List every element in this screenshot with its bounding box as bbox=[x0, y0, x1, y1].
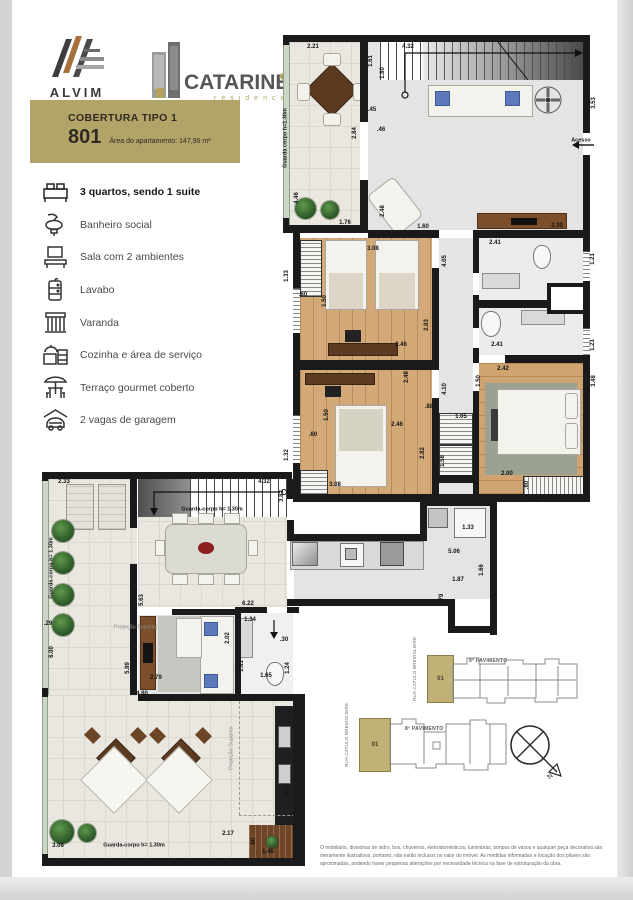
dim-label: .88 bbox=[425, 404, 433, 410]
dim-label: 2.46 bbox=[391, 422, 403, 428]
plan-shape bbox=[58, 350, 67, 364]
plan-shape bbox=[543, 758, 557, 772]
plan-shape bbox=[49, 426, 53, 430]
dim-label: 1.80 bbox=[380, 67, 386, 79]
dim-label: 5.99 bbox=[125, 662, 131, 674]
plan-shape bbox=[42, 408, 69, 433]
dim-label: 3.08 bbox=[52, 843, 64, 849]
dim-label: 1.58 bbox=[440, 455, 446, 467]
lavabo-cabinet-icon bbox=[42, 277, 72, 304]
dim-label: 1.50 bbox=[476, 375, 482, 387]
kitchen-icon bbox=[42, 342, 72, 369]
alvim-logo: ALVIM Construtora bbox=[42, 33, 112, 105]
plan-shape bbox=[45, 347, 57, 352]
dim-label: 2.21 bbox=[307, 44, 319, 50]
dim-label: 2.48 bbox=[380, 205, 386, 217]
dim-label: 2.82 bbox=[420, 447, 426, 459]
dim-label: 1.24 bbox=[285, 662, 291, 674]
plan-shape bbox=[57, 284, 59, 286]
dim-label: 1.76 bbox=[339, 220, 351, 226]
dim-label: 1.21 bbox=[590, 339, 596, 351]
dim-label: 2.83 bbox=[424, 319, 430, 331]
compass-rose: N bbox=[507, 722, 565, 780]
plan-shape: 801 Área do apartamento: 147,96 m² bbox=[68, 126, 240, 149]
plan-shape: 3 quartos, sendo 1 suite Banheiro social… bbox=[42, 176, 277, 437]
dim-label: Acesso bbox=[571, 138, 591, 144]
legend-item-varanda: Varanda bbox=[42, 306, 277, 339]
plan-shape bbox=[45, 377, 66, 382]
plan-shape: CATARINE residence bbox=[150, 40, 300, 102]
dim-label: 4.80 bbox=[136, 691, 148, 697]
alvim-logo-icon bbox=[46, 33, 108, 79]
alvim-name: ALVIM bbox=[42, 85, 112, 100]
garage-car-icon bbox=[42, 407, 72, 434]
plan-shape bbox=[42, 212, 69, 238]
dim-label: 2.41 bbox=[489, 240, 501, 246]
dim-label: 1.48 bbox=[529, 496, 541, 502]
dim-label: 1.66 bbox=[479, 564, 485, 576]
dim-label: 2.84 bbox=[352, 127, 358, 139]
dim-label: 4.05 bbox=[442, 255, 448, 267]
dim-label: .60 bbox=[309, 432, 317, 438]
plan-shape bbox=[42, 180, 69, 204]
dim-label: Guarda-corpo h= 1.30m bbox=[103, 843, 165, 849]
legend-label: Lavabo bbox=[80, 284, 114, 296]
dim-label: .60 bbox=[251, 838, 257, 846]
dim-label: .79 bbox=[439, 594, 445, 602]
upper-floor-plan: 2.214.321.611.803.53.452.84.46Guarda cor… bbox=[283, 33, 598, 505]
legend-item-garagem: 2 vagas de garagem bbox=[42, 404, 277, 437]
plan-shape bbox=[51, 229, 57, 233]
dim-label: 4.10 bbox=[442, 383, 448, 395]
plan-shape bbox=[405, 53, 575, 92]
dim-label: .30 bbox=[280, 637, 288, 643]
dim-label: 3.08 bbox=[367, 246, 379, 252]
plan-shape bbox=[42, 342, 69, 368]
plan-shape bbox=[44, 189, 67, 198]
dim-label: 2.79 bbox=[150, 675, 162, 681]
plan-shape bbox=[84, 49, 100, 52]
dim-label: 2.33 bbox=[58, 479, 70, 485]
unit-number: 801 bbox=[68, 126, 101, 149]
dim-label: 3.48 bbox=[591, 375, 597, 387]
plan-shape bbox=[44, 410, 67, 417]
dim-label: 1.33 bbox=[462, 525, 474, 531]
dim-label: 1.50 bbox=[324, 409, 330, 421]
unit-badge: COBERTURA TIPO 1 801 Área do apartamento… bbox=[30, 100, 240, 163]
dim-label: 1.48 bbox=[262, 849, 274, 855]
dim-label: 2.17 bbox=[222, 831, 234, 837]
dim-label: Guarda corpo h=1.30m bbox=[283, 108, 289, 168]
plan-shape bbox=[575, 49, 583, 57]
plan-shape bbox=[270, 632, 278, 639]
dim-label: 1.32 bbox=[284, 449, 290, 461]
plan-shape bbox=[45, 260, 66, 264]
plan-shape bbox=[170, 46, 178, 90]
catarine-name: CATARINE bbox=[184, 72, 289, 93]
page: ALVIM Construtora CATARINE residence COB… bbox=[12, 0, 617, 877]
tv-icon bbox=[42, 244, 72, 271]
dim-label: Projeção Superior bbox=[114, 625, 158, 631]
legend-label: Varanda bbox=[80, 317, 119, 329]
plan-shape bbox=[46, 220, 62, 229]
dim-label: 2.00 bbox=[501, 471, 513, 477]
dim-label: 3.08 bbox=[329, 482, 341, 488]
dim-label: Projeção Superior bbox=[229, 726, 235, 770]
dim-label: 1.65 bbox=[260, 673, 272, 679]
lower-plan-arrows bbox=[42, 468, 512, 870]
dim-label: 3.53 bbox=[591, 97, 597, 109]
plan-shape bbox=[42, 311, 69, 335]
plan-shape bbox=[402, 92, 408, 98]
legend-label: 2 vagas de garagem bbox=[80, 414, 176, 426]
dim-label: 5.63 bbox=[139, 594, 145, 606]
legend-item-livingroom: Sala com 2 ambientes bbox=[42, 241, 277, 274]
plan-shape bbox=[150, 508, 158, 516]
dim-label: .60 bbox=[524, 481, 530, 489]
dim-label: 4.87 bbox=[285, 784, 291, 796]
dim-label: .60 bbox=[299, 292, 307, 298]
legend-label: 3 quartos, sendo 1 suite bbox=[80, 186, 200, 198]
dim-label: 1.50 bbox=[322, 295, 328, 307]
dim-label: 1.60 bbox=[417, 224, 429, 230]
plan-shape bbox=[154, 55, 164, 89]
plan-shape bbox=[42, 245, 69, 270]
lower-floor-plan: 2.334.323.82Guarda-corpo h= 1.30mGuarda-… bbox=[42, 468, 512, 870]
dim-label: Guarda-corpo h= 1.30m bbox=[181, 507, 243, 513]
balcony-railing-icon bbox=[42, 309, 72, 336]
plan-shape bbox=[80, 57, 104, 61]
plan-shape bbox=[58, 426, 62, 430]
legend-item-lavabo: Lavabo bbox=[42, 274, 277, 307]
dim-label: 2.30 bbox=[551, 223, 563, 229]
upper-plan-arrows bbox=[283, 33, 598, 505]
plan-shape bbox=[498, 42, 528, 80]
unit-area: Área do apartamento: 147,96 m² bbox=[109, 138, 210, 145]
dim-label: 1.33 bbox=[284, 270, 290, 282]
dim-label: 1.87 bbox=[452, 577, 464, 583]
dim-label: 2.42 bbox=[497, 366, 509, 372]
legend: 3 quartos, sendo 1 suite Banheiro social… bbox=[42, 176, 277, 437]
legend-item-kitchen: Cozinha e área de serviço bbox=[42, 339, 277, 372]
plan-shape bbox=[76, 65, 104, 69]
washbasin-icon bbox=[42, 211, 72, 238]
dim-label: 1.34 bbox=[244, 617, 256, 623]
plan-shape bbox=[42, 277, 69, 304]
dim-label: 2.02 bbox=[225, 632, 231, 644]
legend-label: Sala com 2 ambientes bbox=[80, 251, 184, 263]
plan-shape bbox=[46, 313, 65, 317]
plan-shape bbox=[42, 374, 69, 401]
plan-shape bbox=[57, 184, 64, 189]
legend-item-bedrooms: 3 quartos, sendo 1 suite bbox=[42, 176, 277, 209]
legend-label: Cozinha e área de serviço bbox=[80, 349, 202, 361]
catarine-building-icon bbox=[150, 40, 184, 102]
page-edge-right bbox=[617, 0, 633, 900]
dim-label: 1.61 bbox=[368, 55, 374, 67]
plan-shape: CATARINE residence bbox=[184, 72, 289, 102]
plan-shape bbox=[57, 290, 59, 292]
dim-label: 2.48 bbox=[404, 371, 410, 383]
dim-label: 2.46 bbox=[395, 342, 407, 348]
plan-shape bbox=[156, 88, 164, 98]
plan-shape bbox=[48, 214, 57, 220]
plan-shape bbox=[48, 247, 62, 257]
unit-type-title: COBERTURA TIPO 1 bbox=[68, 112, 240, 124]
plan-shape bbox=[44, 354, 56, 364]
dim-label: .46 bbox=[377, 127, 385, 133]
page-edge-bottom bbox=[0, 877, 633, 900]
legend-item-terraco: Terraço gourmet coberto bbox=[42, 372, 277, 405]
legend-item-bathroom: Banheiro social bbox=[42, 209, 277, 242]
plan-shape bbox=[47, 184, 54, 189]
dim-label: Guarda-corpo h= 1.30m bbox=[49, 537, 55, 599]
legend-label: Banheiro social bbox=[80, 219, 152, 231]
legend-label: Terraço gourmet coberto bbox=[80, 382, 194, 394]
dim-label: 4.32 bbox=[258, 479, 270, 485]
dim-label: 1.81 bbox=[239, 660, 245, 672]
dim-label: 1.21 bbox=[590, 253, 596, 265]
floorplan-brochure-page: { "header": { "alvim_name": "ALVIM", "al… bbox=[0, 0, 633, 900]
bed-icon bbox=[42, 179, 72, 206]
dim-label: 2.41 bbox=[491, 342, 503, 348]
dim-label: .45 bbox=[368, 107, 376, 113]
dim-label: 1.05 bbox=[455, 414, 467, 420]
dim-label: .29 bbox=[44, 621, 52, 627]
dim-label: 5.06 bbox=[448, 549, 460, 555]
dim-label: 4.32 bbox=[402, 44, 414, 50]
umbrella-table-icon bbox=[42, 374, 72, 401]
page-edge-left bbox=[0, 0, 12, 900]
dim-label: 3.82 bbox=[279, 490, 285, 502]
dim-label: 4.46 bbox=[294, 192, 300, 204]
dim-label: 6.00 bbox=[49, 646, 55, 658]
dim-label: 6.22 bbox=[242, 601, 254, 607]
